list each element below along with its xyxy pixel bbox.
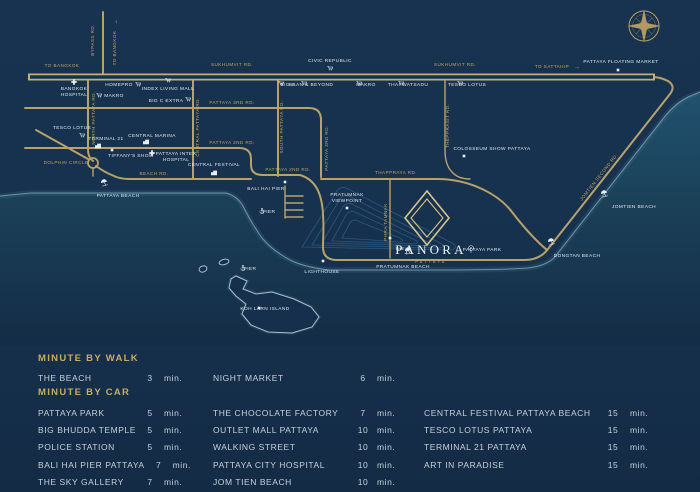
time-unit: min. bbox=[630, 442, 670, 452]
place-name: PATTAYA CITY HOSPITAL bbox=[213, 460, 349, 470]
poi-label-pattaya-inter-hospital: PATTAYA INTER bbox=[156, 151, 197, 157]
poi-label-pratumnak-beach: PRATUMNAK BEACH bbox=[376, 264, 430, 270]
poi-label-koh-larn: KOH LARN ISLAND bbox=[240, 306, 289, 312]
road-label-south-pattaya-rd: SOUTH PATTAYA RD. bbox=[279, 100, 284, 153]
poi-label-lighthouse: LIGHTHOUSE bbox=[304, 269, 339, 275]
road-label-pattaya-2nd-s: PATTAYA 2ND RD. bbox=[265, 167, 310, 172]
pattaya-map: THE PANORA PATTAYA TO BANGKOKSUKHUMVIT R… bbox=[0, 0, 700, 345]
place-name: THE SKY GALLERY bbox=[38, 477, 136, 487]
legend-row: ART IN PARADISE15min. bbox=[424, 456, 670, 473]
time-value: 15 bbox=[596, 408, 630, 418]
cart-icon bbox=[185, 97, 190, 101]
road-label-thepprasit-rd: THEPPRASIT RD. bbox=[445, 104, 450, 148]
poi-label-tesco-lotus-left: TESCO LOTUS bbox=[53, 125, 91, 131]
cart-icon bbox=[96, 93, 101, 97]
bali-hai-pier-structure bbox=[285, 186, 303, 218]
legend-row: THE BEACH3min. bbox=[38, 369, 200, 386]
poi-label-baan-and-beyond: BAAN & BEYOND bbox=[289, 82, 334, 88]
legend-row: THE SKY GALLERY7min. bbox=[38, 473, 200, 490]
road-label-pattaya-3rd-h: PATTAYA 3RD RD. bbox=[209, 100, 254, 105]
walk-column-1: THE BEACH3min. bbox=[38, 369, 200, 386]
poi-label-homepro: HOMEPRO bbox=[105, 82, 133, 88]
time-unit: min. bbox=[164, 408, 200, 418]
poi-label-makro-left: MAKRO bbox=[104, 93, 124, 99]
compass-icon bbox=[628, 10, 661, 43]
legend-row: NIGHT MARKET6min. bbox=[213, 369, 413, 386]
poi-label-bangkok-hospital: HOSPITAL bbox=[61, 92, 88, 98]
place-name: NIGHT MARKET bbox=[213, 373, 349, 383]
time-unit: min. bbox=[164, 373, 200, 383]
umbrella-icon bbox=[100, 179, 107, 187]
time-value: 15 bbox=[596, 442, 630, 452]
poi-label-central-festival: CENTRAL FESTIVAL bbox=[188, 162, 240, 168]
place-name: JOM TIEN BEACH bbox=[213, 477, 349, 487]
place-name: ART IN PARADISE bbox=[424, 460, 596, 470]
time-unit: min. bbox=[164, 477, 200, 487]
poi-label-central-marina: CENTRAL MARINA bbox=[128, 133, 176, 139]
legend-row: BIG BHUDDA TEMPLE5min. bbox=[38, 421, 200, 438]
place-name: WALKING STREET bbox=[213, 442, 349, 452]
time-unit: min. bbox=[377, 373, 413, 383]
building-icon bbox=[143, 140, 149, 145]
legend-row: PATTAYA CITY HOSPITAL10min. bbox=[213, 456, 413, 473]
road-label-phra-tamnak: PHRA TAMNAK bbox=[383, 203, 388, 241]
place-name: THE BEACH bbox=[38, 373, 136, 383]
dot-icon bbox=[111, 149, 114, 152]
time-value: 5 bbox=[136, 425, 164, 435]
road-label-pattaya-2nd-h: PATTAYA 2ND RD. bbox=[209, 140, 254, 145]
poi-label-makro-2: MAKRO bbox=[356, 82, 376, 88]
road-thappraya bbox=[321, 179, 547, 250]
walk-section-title: MINUTE BY WALK bbox=[38, 353, 139, 364]
poi-label-dongtan-beach: DONGTAN BEACH bbox=[554, 253, 601, 259]
panora-logo: THE PANORA PATTAYA bbox=[395, 191, 467, 264]
place-name: OUTLET MALL PATTAYA bbox=[213, 425, 349, 435]
place-name: BALI HAI PIER PATTAYA bbox=[38, 460, 145, 470]
road-label-to-bangkok-v: TO BANGKOK bbox=[112, 30, 117, 65]
time-unit: min. bbox=[377, 442, 413, 452]
time-value: 15 bbox=[596, 460, 630, 470]
poi-label-pier-island: PIER bbox=[244, 266, 257, 272]
cart-icon bbox=[79, 133, 84, 137]
legend-row: TESCO LOTUS PATTAYA15min. bbox=[424, 421, 670, 438]
time-value: 7 bbox=[145, 460, 173, 470]
car-column-3: CENTRAL FESTIVAL PATTAYA BEACH15min.TESC… bbox=[424, 404, 670, 473]
dolphin-circle-roundabout bbox=[88, 158, 98, 168]
dot-icon bbox=[322, 260, 325, 263]
time-unit: min. bbox=[164, 442, 200, 452]
road-label-thappraya-rd: THAPPRAYA RD. bbox=[375, 170, 417, 175]
place-name: CENTRAL FESTIVAL PATTAYA BEACH bbox=[424, 408, 596, 418]
road-label-sukhumvit-1: SUKHUMVIT RD. bbox=[211, 62, 253, 67]
road-label-sukhumvit-2: SUKHUMVIT RD. bbox=[434, 62, 476, 67]
road-label-pattaya-3rd-v: PATTAYA 3RD RD. bbox=[324, 125, 329, 170]
dot-icon bbox=[463, 155, 466, 158]
legend-row: CENTRAL FESTIVAL PATTAYA BEACH15min. bbox=[424, 404, 670, 421]
building-icon bbox=[211, 171, 217, 176]
time-unit: min. bbox=[164, 425, 200, 435]
place-name: POLICE STATION bbox=[38, 442, 136, 452]
poi-label-pattaya-beach: PATTAYA BEACH bbox=[97, 193, 140, 199]
poi-label-bali-hai-pier: BALI HAI PIER bbox=[247, 186, 285, 192]
poi-label-pier-mainland: PIER bbox=[263, 209, 276, 215]
time-value: 3 bbox=[136, 373, 164, 383]
time-value: 7 bbox=[349, 408, 377, 418]
car-column-1: PATTAYA PARK5min.BIG BHUDDA TEMPLE5min.P… bbox=[38, 404, 200, 490]
road-label-to-bangkok-h: TO BANGKOK bbox=[45, 63, 80, 68]
place-name: BIG BHUDDA TEMPLE bbox=[38, 425, 136, 435]
time-value: 5 bbox=[136, 408, 164, 418]
time-unit: min. bbox=[630, 460, 670, 470]
walk-column-2: NIGHT MARKET6min. bbox=[213, 369, 413, 386]
legend-row: POLICE STATION5min. bbox=[38, 439, 200, 456]
poi-label-big-c-extra: BIG C EXTRA bbox=[149, 98, 184, 104]
time-unit: min. bbox=[377, 460, 413, 470]
road-label-dolphin-circle: DOLPHIN CIRCLE bbox=[44, 160, 89, 165]
poi-label-jomtien-beach: JOMTIEN BEACH bbox=[612, 204, 656, 210]
legend-row: THE CHOCOLATE FACTORY7min. bbox=[213, 404, 413, 421]
place-name: PATTAYA PARK bbox=[38, 408, 136, 418]
time-unit: min. bbox=[377, 477, 413, 487]
time-value: 6 bbox=[349, 373, 377, 383]
dot-icon bbox=[284, 181, 287, 184]
poi-label-pratumnak-viewpoint: VIEWPOINT bbox=[332, 198, 363, 204]
poi-label-pratumnak-viewpoint: PRATUMNAK bbox=[330, 192, 364, 198]
road-diagonal-nw bbox=[36, 130, 88, 159]
time-unit: min. bbox=[630, 425, 670, 435]
poi-label-tesco-lotus-2: TESCO LOTUS bbox=[448, 82, 486, 88]
dot-icon bbox=[617, 69, 620, 72]
legend-row: OUTLET MALL PATTAYA10min. bbox=[213, 421, 413, 438]
cart-icon bbox=[135, 82, 140, 86]
time-unit: min. bbox=[377, 425, 413, 435]
time-value: 7 bbox=[136, 477, 164, 487]
direction-arrow-icon: → bbox=[574, 64, 580, 71]
car-section-title: MINUTE BY CAR bbox=[38, 387, 130, 398]
poi-label-civic-republic: CIVIC REPUBLIC bbox=[308, 58, 352, 64]
cart-icon bbox=[327, 66, 332, 70]
legend-row: BALI HAI PIER PATTAYA7min. bbox=[38, 456, 200, 473]
poi-label-tiffanys-show: TIFFANY'S SHOW bbox=[108, 153, 154, 159]
poi-label-thai-watsadu: THAI WATSADU bbox=[388, 82, 429, 88]
road-label-bypass-rd: BYPASS RD. bbox=[90, 24, 95, 56]
poi-label-floating-market: PATTAYA FLOATING MARKET bbox=[583, 59, 658, 65]
time-value: 15 bbox=[596, 425, 630, 435]
road-label-central-pattaya-rd: CENTRAL PATTAYA RD. bbox=[195, 97, 200, 156]
poi-label-pattaya-park: PATTAYA PARK bbox=[463, 247, 502, 253]
time-unit: min. bbox=[630, 408, 670, 418]
place-name: TESCO LOTUS PATTAYA bbox=[424, 425, 596, 435]
time-value: 10 bbox=[349, 477, 377, 487]
road-label-beach-rd: BEACH RD. bbox=[139, 171, 168, 176]
time-unit: min. bbox=[377, 408, 413, 418]
poi-label-colosseum-show: COLOSSEUM SHOW PATTAYA bbox=[453, 146, 531, 152]
time-value: 5 bbox=[136, 442, 164, 452]
time-unit: min. bbox=[173, 460, 209, 470]
place-name: TERMINAL 21 PATTAYA bbox=[424, 442, 596, 452]
time-value: 10 bbox=[349, 442, 377, 452]
legend-row: JOM TIEN BEACH10min. bbox=[213, 473, 413, 490]
poi-label-terminal-21: TERMINAL 21 bbox=[88, 136, 123, 142]
poi-label-index-living-mall: INDEX LIVING MALL bbox=[142, 86, 194, 92]
panora-location-map-page: THE PANORA PATTAYA TO BANGKOKSUKHUMVIT R… bbox=[0, 0, 700, 492]
time-value: 10 bbox=[349, 425, 377, 435]
logo-tagline: PATTAYA bbox=[415, 260, 446, 264]
direction-arrow-icon: ↑ bbox=[114, 19, 117, 26]
time-value: 10 bbox=[349, 460, 377, 470]
legend-row: WALKING STREET10min. bbox=[213, 439, 413, 456]
car-column-2: THE CHOCOLATE FACTORY7min.OUTLET MALL PA… bbox=[213, 404, 413, 490]
place-name: THE CHOCOLATE FACTORY bbox=[213, 408, 349, 418]
distance-legend: MINUTE BY WALK THE BEACH3min. NIGHT MARK… bbox=[0, 345, 700, 492]
legend-row: TERMINAL 21 PATTAYA15min. bbox=[424, 439, 670, 456]
sea-area bbox=[0, 92, 700, 345]
poi-label-pattaya-inter-hospital: HOSPITAL bbox=[163, 157, 190, 163]
poi-label-bangkok-hospital: BANGKOK bbox=[61, 86, 88, 92]
dot-icon bbox=[389, 237, 392, 240]
road-label-to-sattahip: TO SATTAHIP bbox=[535, 64, 569, 69]
legend-row: PATTAYA PARK5min. bbox=[38, 404, 200, 421]
dot-icon bbox=[346, 207, 349, 210]
